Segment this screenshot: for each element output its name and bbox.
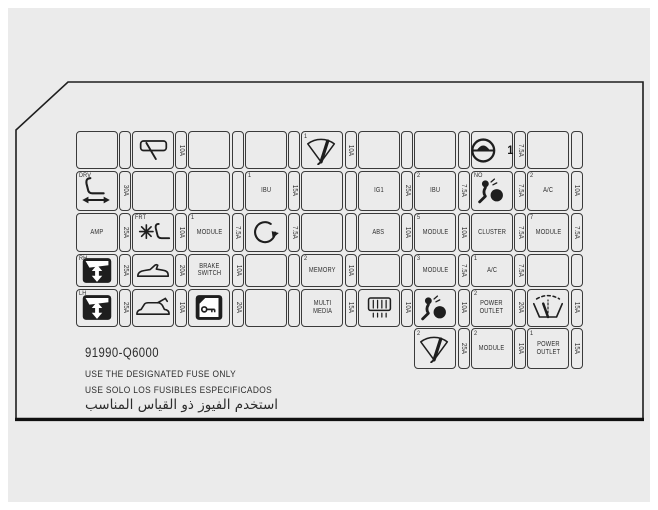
fuse-cell-empty-r1c3 <box>188 131 230 169</box>
fuse-amp-a-c: 10A <box>571 171 583 212</box>
fuse-amp-tailgate-icon: 10A <box>175 289 187 327</box>
fuse-cell-module-r4c7: 3MODULE <box>414 254 456 288</box>
amp-rating: 10A <box>178 227 185 238</box>
amp-rating: 10A <box>347 265 354 276</box>
fuse-cell-empty-r2c2 <box>132 171 174 212</box>
fuse-label: MODULE <box>422 267 448 275</box>
amp-rating: 10A <box>404 227 411 238</box>
fuse-amp-ibu: 7.5A <box>458 171 470 212</box>
fuse-corner-label: NO <box>474 172 483 179</box>
fuse-amp-airbag-icon: 7.5A <box>514 171 526 212</box>
fuse-corner-label: 3 <box>417 255 420 262</box>
fuse-cell-power-outlet-r6c9: 1POWER OUTLET <box>527 328 569 369</box>
fuse-amp-empty <box>345 213 357 253</box>
fuse-corner-label: 2 <box>474 290 477 297</box>
fuse-corner-label: 1 <box>248 172 251 179</box>
fuse-label: A/C <box>487 267 497 275</box>
window-switch-icon <box>78 293 116 322</box>
amp-rating: 25A <box>460 343 467 354</box>
fuse-amp-empty <box>571 254 583 288</box>
power-seat-icon <box>78 176 116 205</box>
fuse-cell-cluster-r3c8: CLUSTER <box>471 213 513 253</box>
fuse-corner-label: 2 <box>474 330 477 337</box>
fuse-cell-washer-icon-r5c9 <box>527 289 569 327</box>
fuse-cell-front-wiper-icon-r1c5: 1 <box>301 131 343 169</box>
steering-icon <box>469 136 507 165</box>
fuse-corner-label: 2 <box>417 172 420 179</box>
fuse-amp-empty <box>232 131 244 169</box>
fuse-amp-module: 7.5A <box>232 213 244 253</box>
fuse-cell-ibu-r2c7: 2IBU <box>414 171 456 212</box>
fuse-cell-rotate-arrow-icon-r3c4 <box>245 213 287 253</box>
fuse-amp-abs: 10A <box>401 213 413 253</box>
amp-rating: 10A <box>347 144 354 155</box>
fuse-amp-empty <box>401 131 413 169</box>
fuse-cell-empty-r2c5 <box>301 171 343 212</box>
fuse-cell-airbag-icon-r5c7 <box>414 289 456 327</box>
fuse-cell-module-r3c3: 1MODULE <box>188 213 230 253</box>
amp-rating: 7.5A <box>291 226 298 239</box>
front-wiper-icon <box>416 334 454 363</box>
amp-rating: 30A <box>122 185 129 196</box>
fuse-amp-empty <box>119 131 131 169</box>
fuse-cell-empty-r1c7 <box>414 131 456 169</box>
amp-rating: 10A <box>404 302 411 313</box>
fuse-label: MODULE <box>422 229 448 237</box>
amp-rating: 7.5A <box>517 226 524 239</box>
fuse-cell-power-outlet-r5c8: 2POWER OUTLET <box>471 289 513 327</box>
fuse-corner-label: 1 <box>191 214 194 221</box>
amp-rating: 7.5A <box>573 226 580 239</box>
fuse-side-number: 1 <box>508 143 514 157</box>
fuse-cell-rear-wiper-icon-r1c2 <box>132 131 174 169</box>
fuse-cell-empty-r1c9 <box>527 131 569 169</box>
fuse-cell-module-r3c7: 5MODULE <box>414 213 456 253</box>
fuse-cell-tailgate-icon-r5c2 <box>132 289 174 327</box>
fuse-amp-empty <box>345 171 357 212</box>
fuse-amp-empty <box>288 289 300 327</box>
fuse-cell-defogger-icon-r5c6 <box>358 289 400 327</box>
fuse-amp-amp: 25A <box>119 213 131 253</box>
amp-rating: 10A <box>178 302 185 313</box>
fuse-cell-front-wiper-icon-r6c7: 2 <box>414 328 456 369</box>
fuse-label: POWER OUTLET <box>480 300 504 315</box>
amp-rating: 15A <box>573 302 580 313</box>
fuse-corner-label: 7 <box>530 214 533 221</box>
fuse-amp-module: 7.5A <box>458 254 470 288</box>
fuse-amp-memory: 10A <box>345 254 357 288</box>
fuse-label: IG1 <box>374 187 384 195</box>
fuse-corner-label: 2 <box>530 172 533 179</box>
fuse-amp-ibu: 15A <box>288 171 300 212</box>
fuse-label: BRAKE SWITCH <box>198 263 222 278</box>
fuse-corner-label: DRV <box>79 172 91 179</box>
fuse-corner-label: 1 <box>530 330 533 337</box>
amp-rating: 25A <box>122 302 129 313</box>
fuse-amp-seat-heater-icon: 10A <box>175 213 187 253</box>
fuse-cell-empty-r1c4 <box>245 131 287 169</box>
fuse-label: MODULE <box>479 345 505 353</box>
fuse-cell-empty-r4c9 <box>527 254 569 288</box>
airbag-icon <box>473 176 511 205</box>
amp-rating: 7.5A <box>517 184 524 197</box>
fuse-cell-steering-icon-r1c8: 1 <box>471 131 513 169</box>
amp-rating: 20A <box>178 265 185 276</box>
amp-rating: 25A <box>404 185 411 196</box>
fuse-cell-empty-r1c6 <box>358 131 400 169</box>
fuse-cell-window-switch-icon-r5c1: LH <box>76 289 118 327</box>
fuse-label: MODULE <box>197 229 223 237</box>
fuse-amp-empty <box>571 131 583 169</box>
defogger-icon <box>360 293 398 322</box>
fuse-amp-cluster: 7.5A <box>514 213 526 253</box>
fuse-amp-power-seat-icon: 30A <box>119 171 131 212</box>
rotate-arrow-icon <box>247 218 285 247</box>
fuse-cell-a-c-r2c9: 2A/C <box>527 171 569 212</box>
fuse-amp-power-outlet: 20A <box>514 289 526 327</box>
amp-rating: 7.5A <box>517 143 524 156</box>
fuse-label: ABS <box>373 229 385 237</box>
washer-icon <box>529 293 567 322</box>
fuse-label: POWER OUTLET <box>536 341 560 356</box>
fuse-cell-empty-r1c1 <box>76 131 118 169</box>
fuse-corner-label: 1 <box>304 133 307 140</box>
fuse-amp-brake-switch: 10A <box>232 254 244 288</box>
amp-rating: 10A <box>178 144 185 155</box>
tailgate-icon <box>134 293 172 322</box>
fuse-label: CLUSTER <box>478 229 506 237</box>
fuse-amp-window-switch-icon: 25A <box>119 289 131 327</box>
warning-text-en: USE THE DESIGNATED FUSE ONLY <box>85 369 236 380</box>
seat-heater-icon <box>134 218 172 247</box>
fuse-amp-rear-wiper-icon: 10A <box>175 131 187 169</box>
fuse-label: IBU <box>430 187 440 195</box>
fuse-amp-rotate-arrow-icon: 7.5A <box>288 213 300 253</box>
amp-rating: 10A <box>573 185 580 196</box>
amp-rating: 7.5A <box>517 264 524 277</box>
amp-rating: 15A <box>291 185 298 196</box>
fuse-cell-ig1-r2c6: IG1 <box>358 171 400 212</box>
fuse-cell-empty-r5c4 <box>245 289 287 327</box>
fuse-amp-front-wiper-icon: 10A <box>345 131 357 169</box>
amp-rating: 15A <box>347 302 354 313</box>
fuse-amp-airbag-icon: 10A <box>458 289 470 327</box>
fuse-cell-seat-heater-icon-r3c2: FRT <box>132 213 174 253</box>
amp-rating: 7.5A <box>460 264 467 277</box>
fuse-cell-a-c-r4c8: 1A/C <box>471 254 513 288</box>
fuse-amp-empty <box>288 131 300 169</box>
fuse-corner-label: RH <box>79 255 87 262</box>
fuse-label: MEMORY <box>309 267 336 275</box>
fuse-cell-module-r6c8: 2MODULE <box>471 328 513 369</box>
fuse-amp-empty <box>232 171 244 212</box>
fuse-amp-washer-icon: 15A <box>571 289 583 327</box>
fuse-corner-label: FRT <box>135 214 146 221</box>
warning-text-es: USE SOLO LOS FUSIBLES ESPECIFICADOS <box>85 385 272 396</box>
fuse-cell-empty-r4c4 <box>245 254 287 288</box>
fuse-corner-label: 5 <box>417 214 420 221</box>
fuse-cell-multi-media-r5c5: MULTI MEDIA <box>301 289 343 327</box>
rear-wiper-icon <box>134 136 172 165</box>
fuse-label: A/C <box>543 187 553 195</box>
fuse-amp-empty <box>288 254 300 288</box>
fuse-amp-a-c: 7.5A <box>514 254 526 288</box>
fuse-label: AMP <box>90 229 103 237</box>
fuse-cell-empty-r3c5 <box>301 213 343 253</box>
fuse-cell-door-lock-icon-r5c3 <box>188 289 230 327</box>
amp-rating: 10A <box>517 343 524 354</box>
fuse-amp-empty <box>401 254 413 288</box>
part-number: 91990-Q6000 <box>85 345 159 360</box>
fuse-corner-label: 1 <box>474 255 477 262</box>
fuse-amp-empty <box>458 131 470 169</box>
fuse-cell-abs-r3c6: ABS <box>358 213 400 253</box>
amp-rating: 20A <box>234 302 241 313</box>
fuse-amp-defogger-icon: 10A <box>401 289 413 327</box>
fuse-amp-front-wiper-icon: 25A <box>458 328 470 369</box>
fuse-cell-convertible-icon-r4c2 <box>132 254 174 288</box>
door-lock-icon <box>190 293 228 322</box>
airbag-icon <box>416 293 454 322</box>
fuse-label: MULTI MEDIA <box>313 300 332 315</box>
fuse-amp-empty <box>175 171 187 212</box>
fuse-corner-label: 2 <box>304 255 307 262</box>
warning-text-ar: استخدم الفيوز ذو القياس المناسب <box>85 397 278 413</box>
fuse-cell-brake-switch-r4c3: BRAKE SWITCH <box>188 254 230 288</box>
amp-rating: 7.5A <box>460 184 467 197</box>
fuse-cell-module-r3c9: 7MODULE <box>527 213 569 253</box>
fuse-label: IBU <box>261 187 271 195</box>
fuse-amp-module: 7.5A <box>571 213 583 253</box>
fuse-amp-door-lock-icon: 20A <box>232 289 244 327</box>
fuse-amp-module: 10A <box>514 328 526 369</box>
fuse-cell-empty-r2c3 <box>188 171 230 212</box>
fuse-cell-power-seat-icon-r2c1: DRV <box>76 171 118 212</box>
front-wiper-icon <box>303 136 341 165</box>
amp-rating: 10A <box>234 265 241 276</box>
amp-rating: 7.5A <box>234 226 241 239</box>
fuse-amp-steering-icon: 7.5A <box>514 131 526 169</box>
fuse-cell-memory-r4c5: 2MEMORY <box>301 254 343 288</box>
fuse-amp-power-outlet: 15A <box>571 328 583 369</box>
fuse-cell-empty-r4c6 <box>358 254 400 288</box>
fuse-cell-ibu-r2c4: 1IBU <box>245 171 287 212</box>
convertible-icon <box>134 256 172 285</box>
amp-rating: 25A <box>122 227 129 238</box>
fuse-box-label: 10A110A17.5ADRV30A1IBU15AIG125A2IBU7.5AN… <box>0 0 658 510</box>
fuse-corner-label: 2 <box>417 330 420 337</box>
fuse-label: MODULE <box>535 229 561 237</box>
amp-rating: 10A <box>460 227 467 238</box>
fuse-amp-module: 10A <box>458 213 470 253</box>
fuse-amp-multi-media: 15A <box>345 289 357 327</box>
fuse-cell-window-switch-icon-r4c1: RH <box>76 254 118 288</box>
fuse-corner-label: LH <box>79 290 86 297</box>
amp-rating: 20A <box>517 302 524 313</box>
fuse-amp-ig1: 25A <box>401 171 413 212</box>
fuse-amp-convertible-icon: 20A <box>175 254 187 288</box>
fuse-cell-airbag-icon-r2c8: NO <box>471 171 513 212</box>
amp-rating: 15A <box>573 343 580 354</box>
fuse-cell-amp-r3c1: AMP <box>76 213 118 253</box>
fuse-amp-window-switch-icon: 25A <box>119 254 131 288</box>
amp-rating: 10A <box>460 302 467 313</box>
amp-rating: 25A <box>122 265 129 276</box>
